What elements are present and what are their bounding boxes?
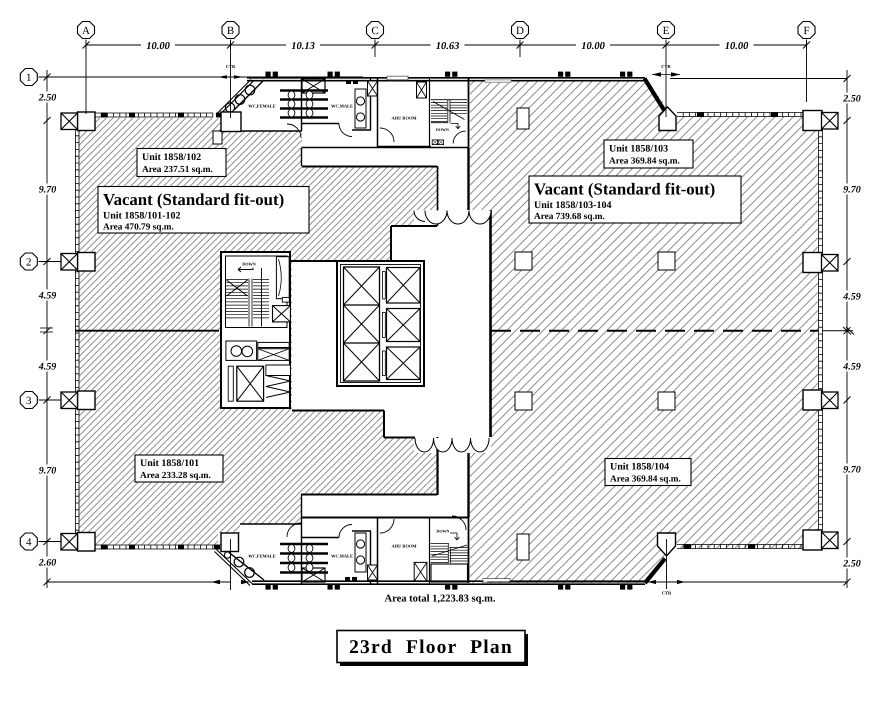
svg-text:D: D — [516, 25, 524, 37]
svg-text:2.50: 2.50 — [842, 559, 861, 570]
svg-text:Area 233.28 sq.m.: Area 233.28 sq.m. — [140, 471, 211, 481]
svg-text:2.50: 2.50 — [842, 94, 861, 105]
svg-text:2.50: 2.50 — [38, 93, 57, 104]
svg-text:DOWN: DOWN — [436, 127, 449, 132]
svg-text:4.59: 4.59 — [842, 362, 861, 373]
svg-text:WC.FEMALE: WC.FEMALE — [248, 554, 276, 559]
svg-text:Area total 1,223.83 sq.m.: Area total 1,223.83 sq.m. — [385, 594, 496, 605]
svg-text:2: 2 — [26, 256, 32, 268]
svg-text:Unit 1858/104: Unit 1858/104 — [610, 462, 669, 473]
svg-text:Area 470.79 sq.m.: Area 470.79 sq.m. — [103, 223, 174, 233]
svg-text:AHU ROOM: AHU ROOM — [392, 544, 418, 549]
svg-text:10.00: 10.00 — [725, 41, 749, 52]
svg-text:AHU ROOM: AHU ROOM — [392, 116, 418, 121]
svg-text:A: A — [82, 25, 90, 37]
svg-text:Unit 1858/101-102: Unit 1858/101-102 — [103, 211, 181, 222]
svg-text:9.70: 9.70 — [843, 465, 861, 476]
svg-text:Unit 1858/103-104: Unit 1858/103-104 — [534, 200, 612, 211]
svg-text:10.63: 10.63 — [436, 41, 460, 52]
svg-text:9.70: 9.70 — [39, 466, 57, 477]
svg-text:E: E — [663, 25, 670, 37]
svg-text:Unit 1858/103: Unit 1858/103 — [609, 144, 668, 155]
svg-text:CTR: CTR — [662, 591, 672, 596]
svg-text:Vacant (Standard fit-out): Vacant (Standard fit-out) — [103, 190, 284, 209]
svg-text:Area 739.68 sq.m.: Area 739.68 sq.m. — [534, 212, 605, 222]
svg-text:Area 369.84 sq.m.: Area 369.84 sq.m. — [609, 157, 680, 167]
svg-text:WC.MALE: WC.MALE — [331, 554, 353, 559]
svg-text:9.70: 9.70 — [39, 185, 57, 196]
svg-text:Area 369.84 sq.m.: Area 369.84 sq.m. — [610, 475, 681, 485]
svg-text:10.00: 10.00 — [581, 41, 605, 52]
svg-text:C: C — [371, 25, 378, 37]
svg-text:WC.FEMALE: WC.FEMALE — [248, 104, 276, 109]
svg-text:CTR: CTR — [661, 64, 671, 69]
svg-text:DOWN: DOWN — [437, 529, 450, 534]
svg-text:1: 1 — [26, 72, 32, 84]
svg-text:CTR: CTR — [226, 64, 236, 69]
svg-text:3: 3 — [26, 395, 32, 407]
svg-text:F: F — [803, 25, 809, 37]
svg-text:B: B — [227, 25, 234, 37]
svg-text:4.59: 4.59 — [842, 292, 861, 303]
svg-text:Unit 1858/101: Unit 1858/101 — [140, 458, 199, 469]
svg-text:9.70: 9.70 — [843, 185, 861, 196]
svg-text:10.00: 10.00 — [146, 41, 170, 52]
svg-text:23rd Floor Plan: 23rd Floor Plan — [349, 637, 513, 658]
svg-text:4: 4 — [26, 536, 32, 548]
svg-text:DOWN: DOWN — [242, 262, 256, 267]
svg-text:10.13: 10.13 — [291, 41, 315, 52]
svg-text:Area 237.51 sq.m.: Area 237.51 sq.m. — [142, 165, 213, 175]
svg-text:4.59: 4.59 — [38, 291, 57, 302]
svg-text:4.59: 4.59 — [38, 362, 57, 373]
svg-text:Unit 1858/102: Unit 1858/102 — [142, 152, 201, 163]
svg-text:2.60: 2.60 — [38, 558, 57, 569]
svg-text:WC.MALE: WC.MALE — [331, 104, 353, 109]
svg-text:Vacant (Standard fit-out): Vacant (Standard fit-out) — [534, 180, 715, 199]
